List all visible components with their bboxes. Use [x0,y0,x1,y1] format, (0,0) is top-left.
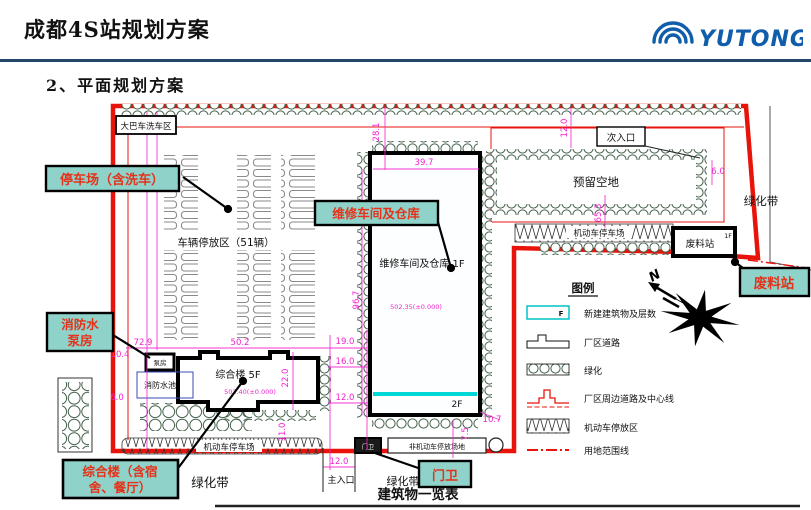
dim-corner-7-5: 7.5 [461,427,471,441]
dim-gap-16: 16.0 [336,357,355,367]
legend-label-road: 厂区道路 [584,337,620,349]
gate-house: 门卫 [355,438,381,453]
legend-label-greening: 绿化 [584,365,602,377]
complex-building-label: 综合楼 5F [215,368,261,381]
dim-reserved-right: 6.0 [711,167,725,177]
topright-diagonal-trees [540,243,672,255]
callout-workshop-label: 维修车间及仓库 [332,206,420,221]
callout-fire-pump-line2: 泵房 [67,333,92,348]
dim-gap-12: 12.0 [336,393,355,403]
dim-complex-width: 50.2 [231,338,250,348]
green-belt-right-label: 绿化带 [744,194,779,208]
dim-top-offset: 28.1 [372,123,382,142]
dim-complex-top: 72.9 [134,338,153,348]
motor-parking-bottom-label: 机动车停车场 [203,442,254,453]
dim-reserved-below: 65.3 [594,204,604,223]
callout-waste-label: 废料站 [754,275,795,292]
motor-parking-top: 机动车停车场 [515,224,673,242]
waste-station-building: 废料站 1F [673,228,735,256]
workshop-2f-label: 2F [452,400,463,410]
legend-label-new-building: 新建建筑物及层数 [584,308,656,320]
waste-station-floor: 1F [724,232,732,240]
secondary-entrance-label: 次入口 [607,132,636,144]
green-belt-bottom-label: 绿化带 [191,475,229,490]
callout-fire-pump-line1: 消防水 [61,317,99,332]
bus-wash-box: 大巴车洗车区 [116,116,176,134]
green-belt-top-trees [121,104,741,115]
vehicle-parking-label: 车辆停放区（51辆） [177,236,274,249]
waste-station-label: 废料站 [686,238,715,250]
dim-reserved-offset: 12.0 [560,119,570,138]
legend-f-glyph: F [559,310,564,318]
gate-house-label: 门卫 [362,443,374,451]
dim-corner-10-7: 10.7 [483,415,502,425]
main-entrance-label: 主入口 [327,474,354,486]
slide: 成都4S站规划方案 YUTONG 2、平面规划方案 [0,0,811,510]
legend-label-motor-parking: 机动车停放区 [584,422,638,434]
callout-complex-line1: 综合楼（含宿 [82,464,157,479]
dim-left-lower: 6.0 [110,393,124,403]
callout-fire-pump: 消防水 泵房 [47,313,113,351]
building-table-title: 建筑物一览表 [377,486,459,503]
callout-complex: 综合楼（含宿 舍、餐厅） [63,460,178,498]
legend-label-boundary: 用地范围线 [584,445,629,457]
callout-waste: 废料站 [740,268,809,296]
callout-complex-line2: 舍、餐厅） [89,480,152,495]
dim-below-11: 11.0 [278,423,288,442]
callout-gate-label: 门卫 [432,468,458,484]
legend: 图例 F 新建建筑物及层数 厂区道路 绿化 厂区周边道路及中心线 机动车停放区 … [527,281,674,457]
outer-road-lines [770,106,811,270]
non-motor-parking-label: 非机动车停放场地 [409,442,465,451]
dim-gap-19: 19.0 [336,337,355,347]
main-entrance: 主入口 [323,448,355,492]
fire-pump-house: 泵房 [146,354,174,370]
motor-parking-top-label: 机动车停车场 [573,228,624,239]
left-green-box [58,378,92,452]
fire-water-pool-label: 消防水池 [144,380,176,390]
callout-parking-label: 停车场（含洗车） [60,172,164,188]
workshop-elevation-mark: 502.35(±0.000) [390,303,442,311]
site-plan: 车辆停放区（51辆） 机动车停车场 机动车停车场 维修车间及仓库 1F 502.… [0,0,811,510]
legend-symbol-motor-parking [527,419,569,433]
callout-parking: 停车场（含洗车） [46,166,179,191]
dim-complex-height: 22.0 [281,369,291,388]
legend-symbol-road [527,335,569,348]
workshop-building: 维修车间及仓库 1F 502.35(±0.000) 2F [370,153,480,415]
legend-symbol-greening [527,364,569,375]
motor-parking-bottom: 机动车停车场 [122,438,322,454]
callout-workshop: 维修车间及仓库 [315,201,438,225]
vehicle-parking-area: 车辆停放区（51辆） [164,155,315,340]
reserved-land-label: 预留空地 [573,175,619,189]
legend-label-perimeter-road: 厂区周边道路及中心线 [584,393,674,405]
compass-north-arrow: N [647,267,745,353]
legend-symbol-new-building: F [527,306,569,319]
complex-building: 综合楼 5F 502.40(±0.000) [178,352,318,410]
callout-gate: 门卫 [419,461,471,487]
dim-workshop-width: 39.7 [415,158,434,168]
dim-workshop-height: 96.7 [352,291,362,310]
dim-entrance-width: 12.0 [330,457,349,467]
fire-pump-house-label: 泵房 [154,358,167,367]
bus-wash-label: 大巴车洗车区 [120,121,172,132]
legend-title: 图例 [572,281,595,295]
legend-symbol-perimeter-road [527,390,569,407]
non-motor-parking: 非机动车停放场地 [388,438,503,453]
green-belt-gate-label: 绿化带 [387,474,420,488]
